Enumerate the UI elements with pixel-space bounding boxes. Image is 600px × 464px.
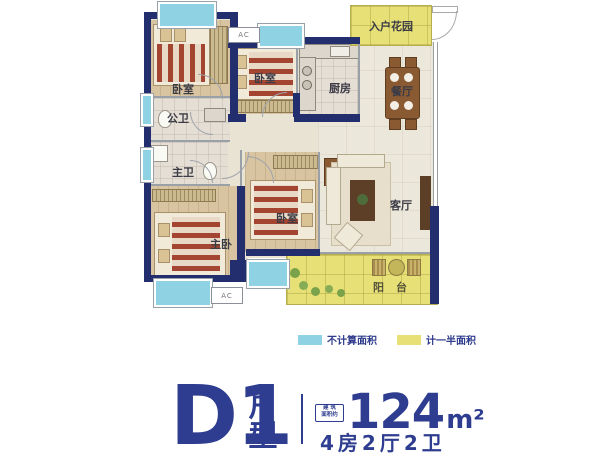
room-label-public-bath: 公卫: [154, 110, 202, 126]
room-label-bedroom1: 卧室: [159, 81, 207, 97]
area-badge: 建 筑 面积约: [315, 404, 344, 422]
ac-label: AC: [238, 31, 250, 39]
window: [158, 2, 216, 28]
balcony-chair: [372, 259, 386, 276]
legend-item-not-counted: 不计算面积: [298, 332, 377, 347]
wall: [148, 140, 230, 142]
wall: [144, 12, 151, 282]
balcony-chair: [407, 259, 421, 276]
unit-model-suffix: 户型: [246, 391, 280, 452]
area-badge-line2: 面积约: [316, 412, 343, 419]
plate: [390, 73, 399, 82]
balcony-plant: [337, 289, 345, 297]
legend-label: 计一半面积: [426, 332, 476, 347]
balcony-plant: [311, 287, 320, 296]
dining-chair: [405, 119, 417, 130]
window: [141, 94, 153, 126]
ac-label: AC: [221, 292, 233, 300]
legend: 不计算面积 计一半面积: [298, 332, 476, 347]
window: [258, 24, 304, 48]
room-label-living: 客厅: [377, 197, 425, 213]
room-label-balcony: 阳台: [372, 279, 420, 295]
plate: [404, 101, 413, 110]
legend-item-half-counted: 计一半面积: [397, 332, 476, 347]
area-badge-line1: 建 筑: [316, 405, 343, 412]
legend-swatch-blue: [298, 335, 322, 345]
ac-platform: AC: [211, 287, 243, 304]
room-label-dining: 餐厅: [378, 83, 426, 99]
wall: [358, 42, 360, 114]
wall: [228, 114, 246, 122]
wardrobe: [210, 26, 228, 84]
wall: [430, 206, 439, 304]
stove-burner: [302, 66, 312, 76]
wall: [318, 252, 437, 254]
dining-chair: [389, 119, 401, 130]
wall: [148, 184, 230, 186]
balcony-plant: [290, 268, 300, 278]
window: [154, 279, 212, 307]
legend-swatch-yellow: [397, 335, 421, 345]
stove-burner: [302, 80, 312, 90]
room-label-master-bath: 主卫: [159, 164, 207, 180]
wall: [294, 114, 360, 122]
room-label-bedroom3: 卧室: [263, 210, 311, 226]
area-unit: m²: [446, 405, 484, 435]
legend-label: 不计算面积: [327, 332, 377, 347]
wall: [293, 93, 300, 117]
shower: [151, 145, 168, 162]
balcony-plant: [299, 281, 308, 290]
balcony-plant: [325, 285, 333, 293]
wall: [318, 152, 320, 252]
window: [247, 260, 289, 288]
room-label-master-bedroom: 主卧: [197, 236, 245, 252]
entry-door-arc: [432, 11, 457, 40]
wardrobe: [273, 155, 319, 169]
room-label-kitchen: 厨房: [316, 80, 364, 96]
plant: [357, 194, 368, 205]
plate: [390, 101, 399, 110]
wall: [230, 260, 246, 282]
window-wall: [433, 42, 438, 208]
plate: [404, 73, 413, 82]
ac-platform: AC: [228, 27, 260, 43]
window: [141, 148, 153, 182]
floor-plan: AC AC 卧室 卧室 公卫 厨房 餐厅 主卫 主卧 卧室 客厅 阳台 入户花园: [0, 0, 600, 330]
sofa: [337, 154, 385, 168]
balcony-table: [388, 259, 405, 276]
unit-layout: 4房2厅2卫: [320, 427, 446, 456]
wall: [246, 249, 320, 256]
wall: [295, 37, 360, 44]
room-label-entry-garden: 入户花园: [367, 18, 415, 34]
kitchen-sink: [330, 46, 350, 57]
room-label-bedroom2: 卧室: [241, 70, 289, 86]
wardrobe: [152, 189, 216, 202]
sofa: [326, 167, 341, 225]
title-divider: [301, 394, 303, 444]
